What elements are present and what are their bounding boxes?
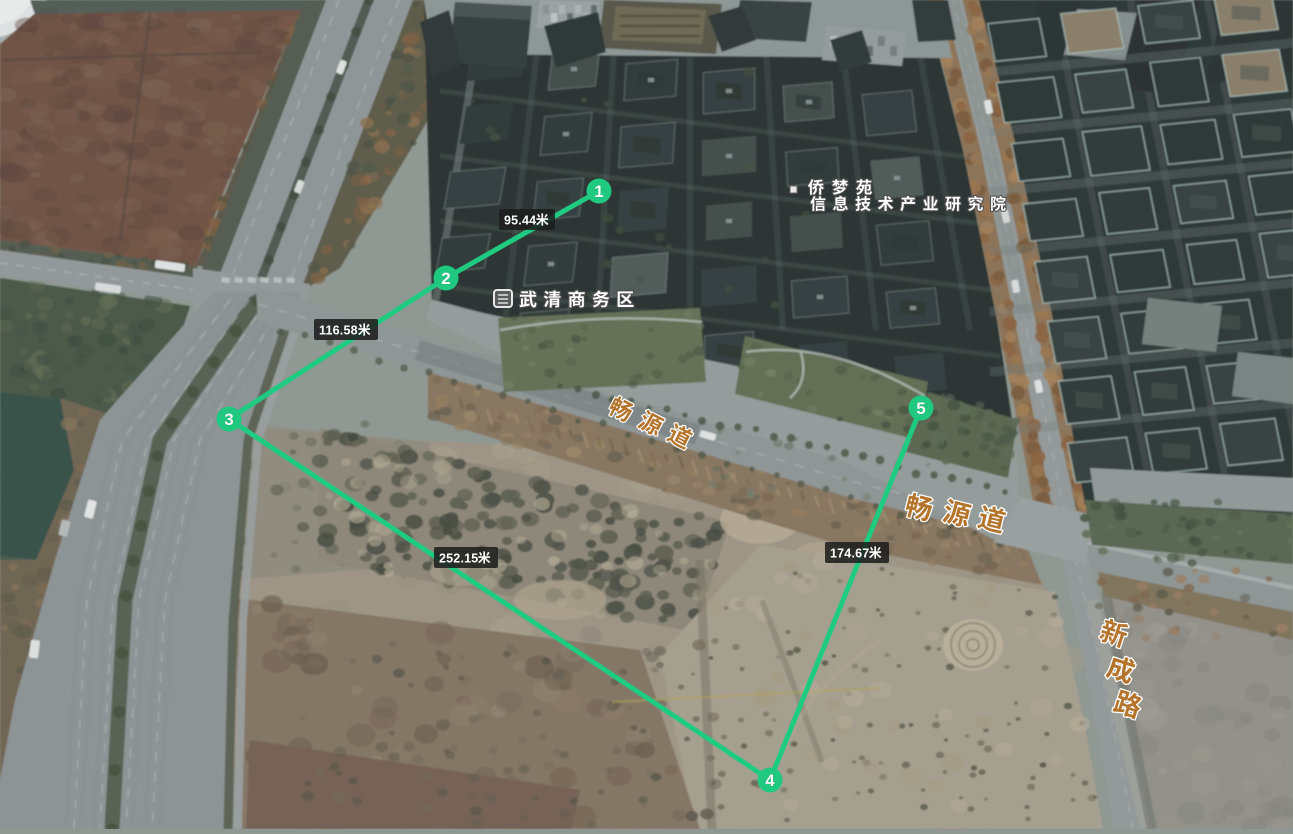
- svg-text:116.58: 116.58: [319, 324, 358, 338]
- svg-text:174.67: 174.67: [830, 547, 869, 561]
- svg-text:5: 5: [916, 399, 925, 418]
- svg-text:2: 2: [441, 269, 450, 288]
- svg-text:1: 1: [594, 182, 603, 201]
- svg-text:3: 3: [224, 410, 233, 429]
- svg-text:4: 4: [765, 771, 775, 790]
- svg-text:252.15: 252.15: [439, 552, 478, 566]
- svg-text:95.44: 95.44: [504, 214, 536, 228]
